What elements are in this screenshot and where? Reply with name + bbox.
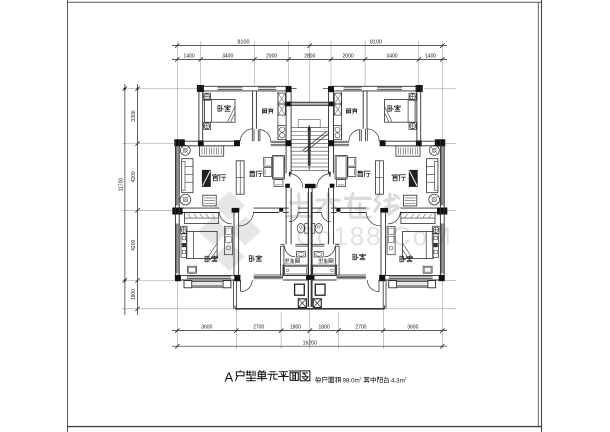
svg-text:3300: 3300 (131, 110, 137, 121)
svg-text:3400: 3400 (386, 54, 397, 60)
svg-text:3600: 3600 (407, 325, 418, 331)
svg-text:4200: 4200 (131, 171, 137, 182)
svg-text:2700: 2700 (253, 325, 264, 331)
svg-text:2800: 2800 (304, 54, 315, 60)
svg-text:2: 2 (360, 377, 362, 381)
svg-text:A: A (225, 370, 234, 385)
svg-text:4200: 4200 (131, 240, 137, 251)
svg-text:16200: 16200 (303, 340, 318, 346)
svg-text:2: 2 (405, 377, 407, 381)
svg-text:2000: 2000 (266, 54, 277, 60)
svg-text:3400: 3400 (222, 54, 233, 60)
svg-text:11700: 11700 (118, 178, 124, 192)
svg-text:2700: 2700 (355, 325, 366, 331)
svg-text:1800: 1800 (290, 325, 301, 331)
svg-text:1400: 1400 (425, 54, 436, 60)
svg-text:1800: 1800 (131, 289, 137, 300)
svg-text:4.3m: 4.3m (391, 377, 405, 384)
svg-text:2000: 2000 (343, 54, 354, 60)
svg-text:8100: 8100 (238, 40, 250, 46)
svg-text:8100: 8100 (370, 40, 382, 46)
svg-text:1400: 1400 (184, 54, 195, 60)
svg-text:1800: 1800 (319, 325, 330, 331)
svg-text:3600: 3600 (201, 325, 212, 331)
svg-text:98.0m: 98.0m (343, 377, 360, 384)
